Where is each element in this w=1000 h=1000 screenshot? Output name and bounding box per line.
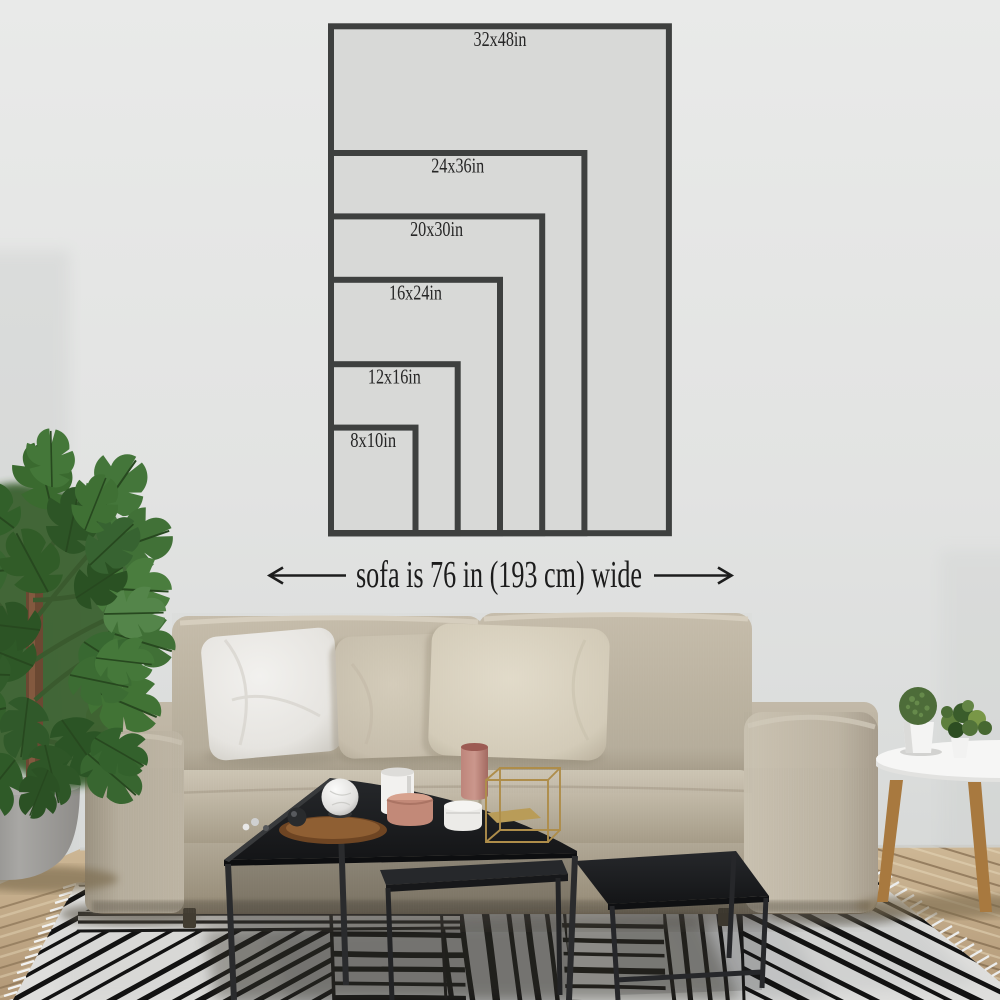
svg-text:8x10in: 8x10in <box>350 428 396 452</box>
svg-text:16x24in: 16x24in <box>389 280 442 304</box>
svg-text:12x16in: 12x16in <box>368 365 421 389</box>
svg-text:20x30in: 20x30in <box>410 217 463 241</box>
svg-text:sofa is 76 in (193 cm) wide: sofa is 76 in (193 cm) wide <box>356 554 642 596</box>
svg-text:32x48in: 32x48in <box>474 27 527 51</box>
svg-text:24x36in: 24x36in <box>431 154 484 178</box>
